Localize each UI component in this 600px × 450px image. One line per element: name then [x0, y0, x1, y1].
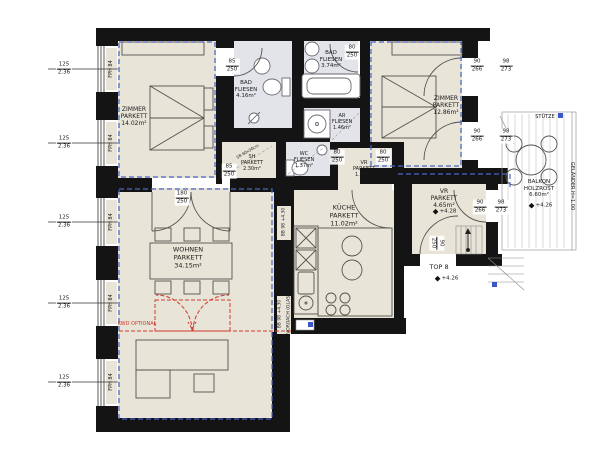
stuetze-marker-icon: [558, 113, 563, 118]
washing-machine: [304, 110, 330, 138]
glazed-insert-2: [277, 296, 291, 334]
misc-markers: [296, 320, 314, 330]
blue-marker-icon-2: [308, 322, 313, 327]
floor-vr-entry: [412, 184, 486, 254]
window-3: [48, 198, 118, 246]
window-2: [48, 120, 118, 166]
floorplan-drawing: [0, 0, 600, 450]
window-5: [48, 359, 118, 406]
floor-zimmer-1: [118, 41, 216, 178]
window-4: [48, 280, 118, 326]
floorplan-canvas: ZIMMERPARKETT14.02m²BADFLIESEN4.16m²BADF…: [0, 0, 600, 450]
blue-marker-icon: [492, 282, 497, 287]
floor-sh: [222, 142, 276, 178]
floor-kueche: [294, 190, 394, 318]
glazed-insert-1: [277, 206, 291, 240]
window-1: [48, 46, 118, 92]
floor-wohnen: [118, 188, 274, 420]
